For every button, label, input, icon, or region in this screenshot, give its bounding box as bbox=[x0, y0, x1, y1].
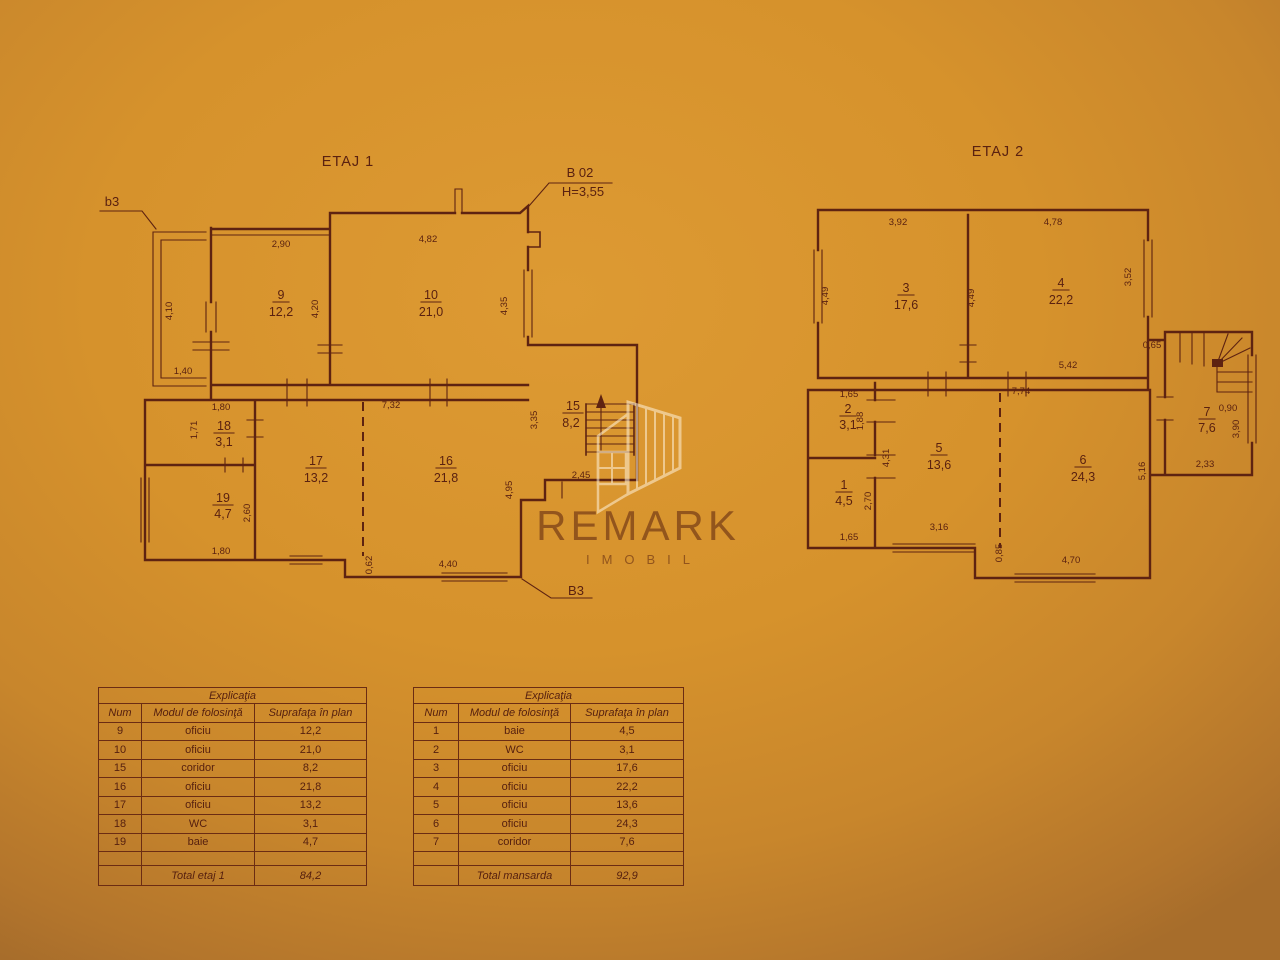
dim-label: 7,32 bbox=[382, 400, 401, 411]
room-number: 18 bbox=[217, 419, 231, 433]
room-area: 13,6 bbox=[927, 458, 951, 472]
remark-logo-icon bbox=[598, 402, 680, 512]
cell-usage: oficiu bbox=[142, 778, 255, 797]
table-row: 17oficiu13,2 bbox=[99, 796, 367, 815]
dim-label: 4,78 bbox=[1044, 217, 1063, 228]
cell-usage: WC bbox=[459, 741, 571, 760]
dim-label: 1,40 bbox=[174, 366, 193, 377]
cell-usage: oficiu bbox=[142, 796, 255, 815]
dim-label: 5,16 bbox=[1137, 462, 1148, 481]
room-area: 22,2 bbox=[1049, 293, 1073, 307]
cell-area: 17,6 bbox=[571, 759, 684, 778]
room-number: 10 bbox=[424, 288, 438, 302]
table-row: 5oficiu13,6 bbox=[414, 796, 684, 815]
cell-num: 4 bbox=[414, 778, 459, 797]
cell-usage: WC bbox=[142, 815, 255, 834]
dim-label: 1,65 bbox=[840, 389, 859, 400]
total-label: Total mansarda bbox=[459, 866, 571, 886]
cell-usage: oficiu bbox=[459, 778, 571, 797]
dim-label: 2,45 bbox=[572, 470, 591, 481]
table-row: 15coridor8,2 bbox=[99, 759, 367, 778]
plan-title: ETAJ 1 bbox=[322, 154, 374, 170]
room-area: 8,2 bbox=[562, 416, 579, 430]
cell-usage: oficiu bbox=[142, 722, 255, 741]
cell-num: 1 bbox=[414, 722, 459, 741]
watermark-subtitle: IMOBIL bbox=[586, 552, 702, 567]
col-header-num: Num bbox=[414, 704, 459, 723]
floorplan-photo: ETAJ 1 b3 B 02 H=3,55 B3 9 12,2 10 21,0 … bbox=[0, 0, 1280, 960]
dim-label: 1,88 bbox=[855, 412, 866, 431]
empty-row bbox=[99, 852, 367, 866]
ceiling-height-label: H=3,55 bbox=[562, 184, 604, 199]
col-header-num: Num bbox=[99, 704, 142, 723]
plan-etaj2-details bbox=[814, 240, 1256, 582]
dim-label: 0,62 bbox=[364, 556, 375, 575]
empty-row bbox=[414, 852, 684, 866]
cell-num: 19 bbox=[99, 833, 142, 852]
empty-cell bbox=[414, 866, 459, 886]
floorplan-sheet: ETAJ 1 b3 B 02 H=3,55 B3 9 12,2 10 21,0 … bbox=[0, 0, 1280, 960]
plan-title: ETAJ 2 bbox=[972, 144, 1024, 160]
total-label: Total etaj 1 bbox=[142, 866, 255, 886]
total-value: 92,9 bbox=[571, 866, 684, 886]
table-row: 6oficiu24,3 bbox=[414, 815, 684, 834]
cell-num: 6 bbox=[414, 815, 459, 834]
cell-usage: baie bbox=[142, 833, 255, 852]
dim-label: 4,49 bbox=[820, 287, 831, 306]
stair-post bbox=[1212, 359, 1223, 367]
cell-usage: oficiu bbox=[459, 759, 571, 778]
cell-area: 3,1 bbox=[255, 815, 367, 834]
section-marker-bottom: B3 bbox=[568, 583, 584, 598]
dim-label: 0,90 bbox=[1219, 403, 1238, 414]
empty-cell bbox=[99, 852, 142, 866]
room-area: 7,6 bbox=[1198, 421, 1215, 435]
cell-usage: oficiu bbox=[142, 741, 255, 760]
room-number: 7 bbox=[1204, 405, 1211, 419]
dim-label: 4,49 bbox=[966, 289, 977, 308]
table-row: 10oficiu21,0 bbox=[99, 741, 367, 760]
plan-etaj1-text: ETAJ 1 b3 B 02 H=3,55 B3 9 12,2 10 21,0 … bbox=[105, 154, 604, 598]
total-value: 84,2 bbox=[255, 866, 367, 886]
room-number: 4 bbox=[1058, 276, 1065, 290]
cell-area: 13,2 bbox=[255, 796, 367, 815]
empty-cell bbox=[99, 866, 142, 886]
room-area: 4,7 bbox=[214, 507, 231, 521]
legend-table-etaj1: Explicaţia Num Modul de folosinţă Supraf… bbox=[98, 687, 367, 886]
cell-num: 2 bbox=[414, 741, 459, 760]
cell-area: 4,7 bbox=[255, 833, 367, 852]
table-row: 9oficiu12,2 bbox=[99, 722, 367, 741]
watermark-title: REMARK bbox=[536, 502, 740, 549]
room-area: 21,8 bbox=[434, 471, 458, 485]
cell-area: 22,2 bbox=[571, 778, 684, 797]
table-title: Explicaţia bbox=[414, 688, 684, 704]
dim-label: 1,80 bbox=[212, 546, 231, 557]
table-row: 4oficiu22,2 bbox=[414, 778, 684, 797]
room-area: 13,2 bbox=[304, 471, 328, 485]
room-number: 15 bbox=[566, 399, 580, 413]
dim-label: 1,80 bbox=[212, 402, 231, 413]
table-row: 7coridor7,6 bbox=[414, 833, 684, 852]
dim-label: 4,31 bbox=[881, 449, 892, 468]
cell-area: 8,2 bbox=[255, 759, 367, 778]
col-header-area: Suprafaţa în plan bbox=[255, 704, 367, 723]
table-row: 18WC3,1 bbox=[99, 815, 367, 834]
stairs-up-arrow-etaj1 bbox=[596, 394, 606, 408]
dim-label: 2,90 bbox=[272, 239, 291, 250]
table-title: Explicaţia bbox=[99, 688, 367, 704]
cell-usage: coridor bbox=[459, 833, 571, 852]
col-header-usage: Modul de folosinţă bbox=[459, 704, 571, 723]
dim-label: 3,52 bbox=[1123, 268, 1134, 287]
empty-cell bbox=[414, 852, 459, 866]
dim-label: 3,16 bbox=[930, 522, 949, 533]
room-area: 4,5 bbox=[835, 494, 852, 508]
room-area: 21,0 bbox=[419, 305, 443, 319]
dim-label: 4,82 bbox=[419, 234, 438, 245]
room-area: 12,2 bbox=[269, 305, 293, 319]
section-marker-top: B 02 bbox=[567, 165, 594, 180]
room-number: 1 bbox=[841, 478, 848, 492]
room-area: 3,1 bbox=[215, 435, 232, 449]
dim-label: 7,74 bbox=[1012, 386, 1031, 397]
cell-area: 4,5 bbox=[571, 722, 684, 741]
room-number: 16 bbox=[439, 454, 453, 468]
room-number: 5 bbox=[936, 441, 943, 455]
table-row: 19baie4,7 bbox=[99, 833, 367, 852]
dim-label: 1,65 bbox=[840, 532, 859, 543]
dim-label: 3,35 bbox=[529, 411, 540, 430]
cell-num: 18 bbox=[99, 815, 142, 834]
dim-label: 2,70 bbox=[863, 492, 874, 511]
plan-etaj2-text: ETAJ 2 3 17,6 4 22,2 2 3,1 1 4,5 5 13,6 … bbox=[820, 144, 1242, 566]
dim-label: 4,10 bbox=[164, 302, 175, 321]
dim-label: 3,92 bbox=[889, 217, 908, 228]
cell-area: 12,2 bbox=[255, 722, 367, 741]
room-area: 17,6 bbox=[894, 298, 918, 312]
empty-cell bbox=[571, 852, 684, 866]
cell-area: 24,3 bbox=[571, 815, 684, 834]
col-header-area: Suprafaţa în plan bbox=[571, 704, 684, 723]
balcony-label: b3 bbox=[105, 194, 119, 209]
cell-num: 5 bbox=[414, 796, 459, 815]
table-row: 3oficiu17,6 bbox=[414, 759, 684, 778]
cell-num: 7 bbox=[414, 833, 459, 852]
room-number: 3 bbox=[903, 281, 910, 295]
room-number: 9 bbox=[278, 288, 285, 302]
cell-area: 13,6 bbox=[571, 796, 684, 815]
room-number: 2 bbox=[845, 402, 852, 416]
cell-num: 10 bbox=[99, 741, 142, 760]
dim-label: 4,70 bbox=[1062, 555, 1081, 566]
total-row: Total mansarda 92,9 bbox=[414, 866, 684, 886]
room-number: 19 bbox=[216, 491, 230, 505]
empty-cell bbox=[255, 852, 367, 866]
dim-label: 4,35 bbox=[499, 297, 510, 316]
cell-area: 3,1 bbox=[571, 741, 684, 760]
cell-usage: baie bbox=[459, 722, 571, 741]
cell-num: 15 bbox=[99, 759, 142, 778]
cell-area: 21,8 bbox=[255, 778, 367, 797]
dim-label: 2,33 bbox=[1196, 459, 1215, 470]
dim-label: 3,90 bbox=[1231, 420, 1242, 439]
cell-num: 16 bbox=[99, 778, 142, 797]
cell-num: 17 bbox=[99, 796, 142, 815]
dim-label: 4,95 bbox=[504, 481, 515, 500]
cell-area: 7,6 bbox=[571, 833, 684, 852]
room-number: 17 bbox=[309, 454, 323, 468]
table-row: 2WC3,1 bbox=[414, 741, 684, 760]
dim-label: 1,71 bbox=[189, 421, 200, 440]
dim-label: 0,85 bbox=[994, 544, 1005, 563]
dim-label: 4,40 bbox=[439, 559, 458, 570]
cell-usage: oficiu bbox=[459, 815, 571, 834]
cell-num: 3 bbox=[414, 759, 459, 778]
dim-label: 4,20 bbox=[310, 300, 321, 319]
total-row: Total etaj 1 84,2 bbox=[99, 866, 367, 886]
legend-table-mansarda: Explicaţia Num Modul de folosinţă Supraf… bbox=[413, 687, 684, 886]
empty-cell bbox=[459, 852, 571, 866]
dim-label: 2,60 bbox=[242, 504, 253, 523]
cell-num: 9 bbox=[99, 722, 142, 741]
cell-usage: coridor bbox=[142, 759, 255, 778]
table-row: 16oficiu21,8 bbox=[99, 778, 367, 797]
dim-label: 0,65 bbox=[1143, 340, 1162, 351]
room-area: 24,3 bbox=[1071, 470, 1095, 484]
table-row: 1baie4,5 bbox=[414, 722, 684, 741]
cell-usage: oficiu bbox=[459, 796, 571, 815]
room-number: 6 bbox=[1080, 453, 1087, 467]
dim-label: 5,42 bbox=[1059, 360, 1078, 371]
empty-cell bbox=[142, 852, 255, 866]
cell-area: 21,0 bbox=[255, 741, 367, 760]
col-header-usage: Modul de folosinţă bbox=[142, 704, 255, 723]
